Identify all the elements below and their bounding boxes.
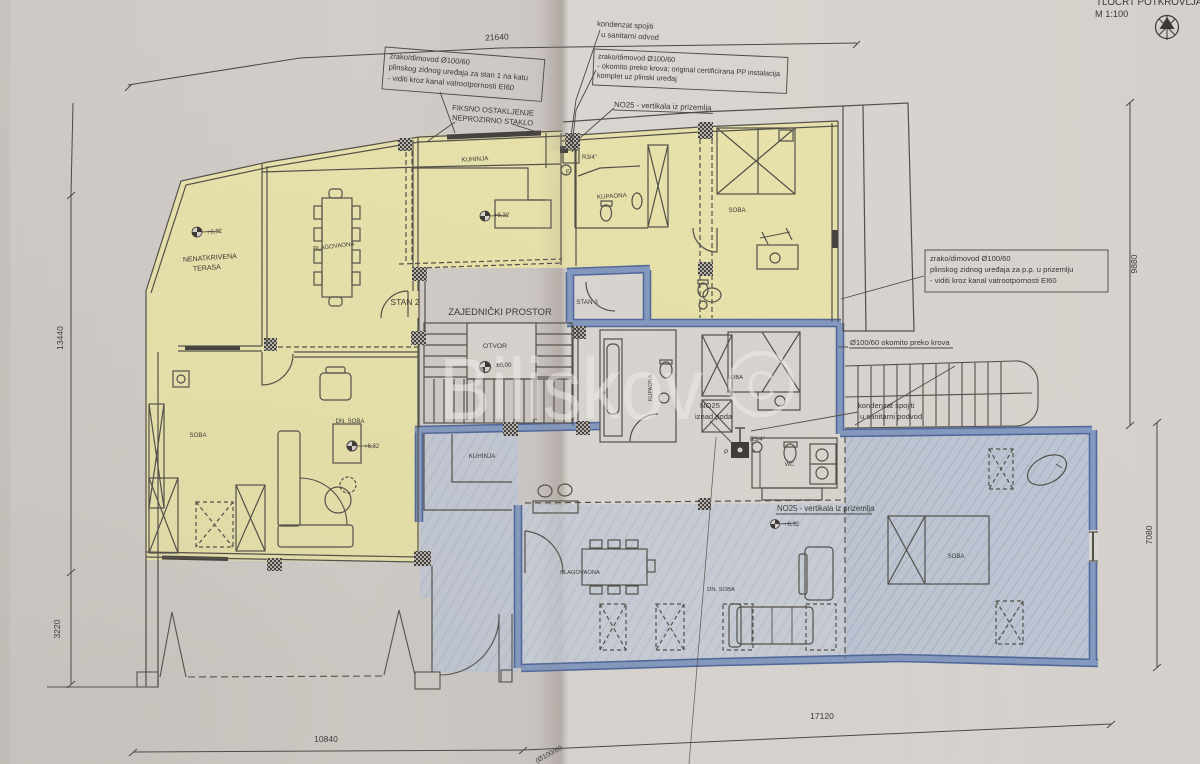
svg-text:M 1:100: M 1:100: [1095, 9, 1128, 19]
svg-text:TLOCRT POTKROVLJA: TLOCRT POTKROVLJA: [1096, 0, 1200, 8]
svg-text:C: C: [747, 364, 776, 408]
svg-text:Biliskov: Biliskov: [439, 341, 703, 438]
